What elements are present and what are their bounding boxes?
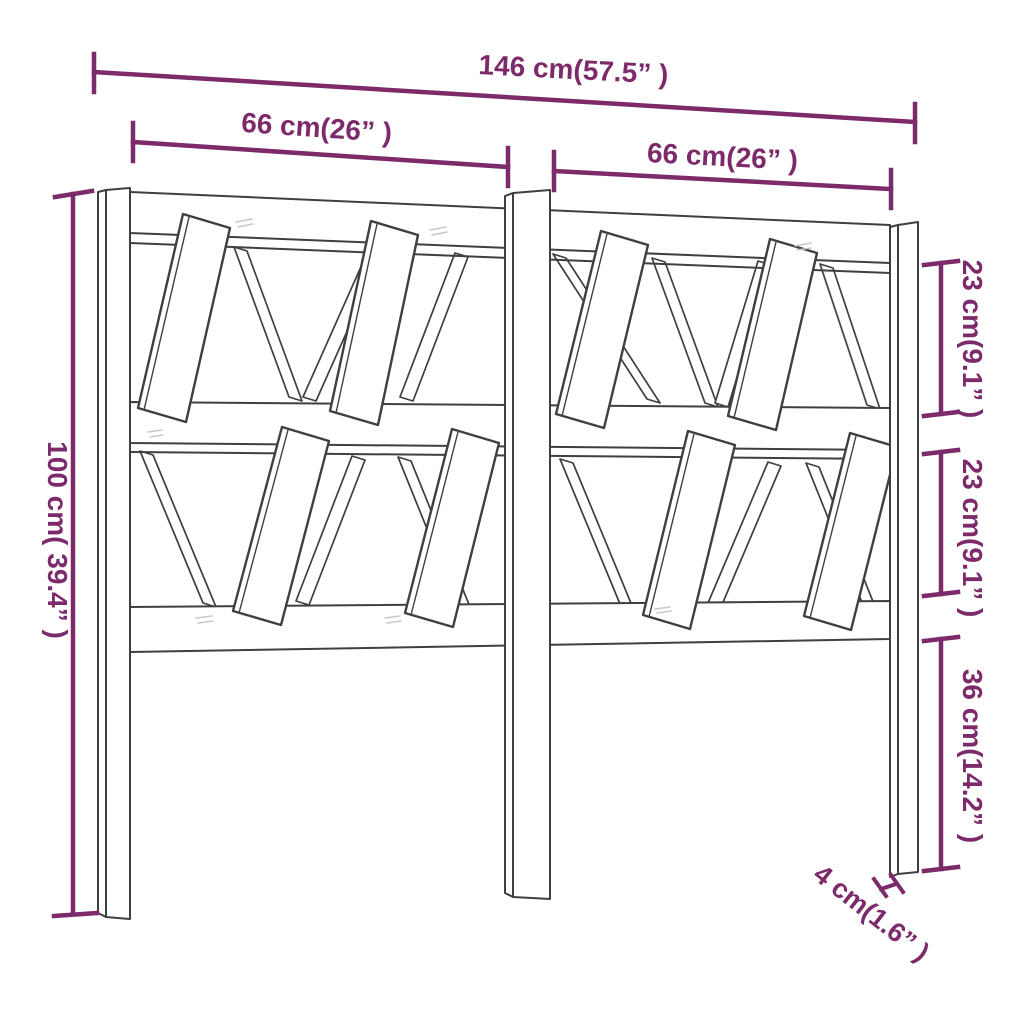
dim-label-lower-row-height: 23 cm(9.1” )	[957, 459, 988, 618]
headboard-drawing	[98, 188, 918, 919]
dim-line-leg-height	[924, 637, 958, 871]
left-post	[98, 188, 130, 919]
dim-line-upper-row	[924, 261, 958, 416]
center-post	[505, 190, 550, 899]
right-post	[890, 222, 918, 877]
dim-label-right-section-width: 66 cm(26” )	[646, 137, 798, 176]
dim-label-leg-height: 36 cm(14.2” )	[957, 669, 988, 843]
dim-marker-post-thickness	[874, 875, 903, 896]
dim-label-total-height: 100 cm( 39.4” )	[42, 441, 73, 639]
dim-label-left-section-width: 66 cm(26” )	[240, 107, 393, 148]
diagram-canvas: 146 cm(57.5” ) 66 cm(26” ) 66 cm(26” ) 1…	[0, 0, 1024, 1024]
headboard-dimension-diagram: 146 cm(57.5” ) 66 cm(26” ) 66 cm(26” ) 1…	[0, 0, 1024, 1024]
dim-label-upper-row-height: 23 cm(9.1” )	[957, 260, 988, 419]
dim-label-total-width: 146 cm(57.5” )	[478, 49, 669, 90]
dim-line-lower-row	[924, 450, 958, 596]
dim-label-post-thickness: 4 cm(1.6” )	[808, 859, 935, 968]
